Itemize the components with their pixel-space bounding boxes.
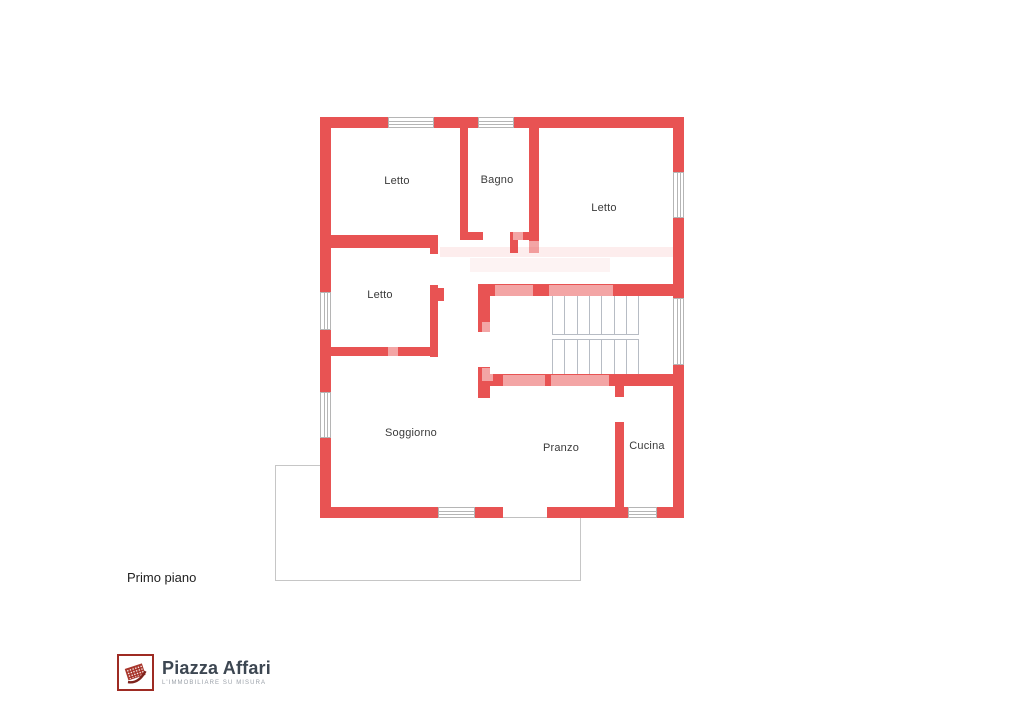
wall-right-c	[673, 365, 684, 518]
window-bottom-2	[628, 507, 657, 518]
window-glazing-line	[324, 293, 325, 329]
watermark-patch	[495, 285, 533, 296]
window-glazing-line	[389, 121, 433, 122]
wall-cucina-left-stub	[615, 386, 624, 397]
stair-tread-line	[626, 339, 627, 374]
stair-tread-line	[626, 296, 627, 334]
room-label-soggiorno: Soggiorno	[385, 427, 437, 439]
window-glazing-line	[324, 393, 325, 437]
watermark-patch	[513, 232, 523, 240]
window-glazing-line	[479, 121, 513, 122]
stair-tread-line	[638, 339, 639, 374]
window-glazing-line	[629, 511, 656, 512]
stair-tread-line	[552, 296, 553, 334]
wall-bottom-b	[475, 507, 503, 518]
stair-landing-line	[552, 339, 639, 340]
window-glazing-line	[479, 124, 513, 125]
agency-name: Piazza Affari	[162, 659, 271, 677]
window-right-1	[673, 172, 684, 218]
stair-tread-line	[577, 339, 578, 374]
terrace-outline-bottom	[275, 580, 581, 581]
window-glazing-line	[680, 299, 681, 364]
building-icon	[122, 659, 149, 686]
wall-bottom-a	[320, 507, 438, 518]
terrace-outline-right	[580, 518, 581, 580]
window-glazing-line	[439, 511, 474, 512]
window-glazing-line	[389, 124, 433, 125]
watermark-patch	[503, 375, 545, 386]
floor-plan-drawing	[0, 0, 1024, 725]
wall-left-a	[320, 117, 331, 292]
wall-letto-divider-stub	[430, 248, 438, 254]
wall-left-c	[320, 438, 331, 518]
window-glazing-line	[629, 514, 656, 515]
window-glazing-line	[439, 514, 474, 515]
wall-midletto-bottom	[330, 347, 438, 356]
agency-tagline: L'IMMOBILIARE SU MISURA	[162, 680, 271, 686]
wall-right-a	[673, 117, 684, 172]
window-glazing-line	[677, 299, 678, 364]
wall-top-b	[434, 117, 478, 128]
stair-tread-line	[589, 339, 590, 374]
stair-tread-line	[601, 339, 602, 374]
stair-tread-line	[614, 339, 615, 374]
window-glazing-line	[677, 173, 678, 217]
window-left-1	[320, 292, 331, 330]
stair-tread-line	[614, 296, 615, 334]
stair-tread-line	[638, 296, 639, 334]
wall-cucina-left	[615, 422, 624, 507]
wall-top-c	[514, 117, 684, 128]
wall-left-b	[320, 330, 331, 392]
watermark-band	[440, 247, 673, 257]
agency-logo-icon	[117, 654, 154, 691]
floor-plan-page: Letto Bagno Letto Letto Soggiorno Pranzo…	[0, 0, 1024, 725]
window-glazing-line	[327, 293, 328, 329]
wall-bagno-bottom-left	[460, 232, 483, 240]
window-left-2	[320, 392, 331, 438]
window-right-2	[673, 298, 684, 365]
wall-letto-divider	[330, 235, 438, 248]
window-top-2	[478, 117, 514, 128]
floor-name-label: Primo piano	[127, 570, 196, 585]
window-bottom-1	[438, 507, 475, 518]
wall-bagno-right	[529, 128, 539, 253]
window-glazing-line	[680, 173, 681, 217]
stair-tread-line	[552, 339, 553, 374]
watermark-patch	[482, 322, 493, 332]
window-top-1	[388, 117, 434, 128]
room-label-letto-3: Letto	[367, 289, 392, 301]
room-label-letto-1: Letto	[384, 175, 409, 187]
agency-logo: Piazza Affari L'IMMOBILIARE SU MISURA	[117, 654, 271, 691]
terrace-outline-top	[275, 465, 320, 466]
terrace-outline-left	[275, 465, 276, 580]
room-label-cucina: Cucina	[629, 440, 664, 452]
watermark-band	[470, 258, 610, 272]
stair-tread-line	[577, 296, 578, 334]
stair-tread-line	[601, 296, 602, 334]
watermark-patch	[482, 368, 493, 381]
watermark-patch	[388, 347, 398, 356]
wall-bottom-d	[657, 507, 684, 518]
wall-midletto-door-bump	[438, 288, 444, 301]
terrace-door-opening	[503, 507, 547, 518]
stair-tread-line	[564, 339, 565, 374]
stair-landing-line	[552, 334, 639, 335]
window-glazing-line	[327, 393, 328, 437]
watermark-patch	[551, 375, 609, 386]
wall-bottom-c	[547, 507, 628, 518]
stair-tread-line	[589, 296, 590, 334]
stair-tread-line	[564, 296, 565, 334]
room-label-letto-2: Letto	[591, 202, 616, 214]
watermark-patch	[549, 285, 613, 296]
room-label-bagno: Bagno	[481, 174, 514, 186]
room-label-pranzo: Pranzo	[543, 442, 579, 454]
wall-bagno-left	[460, 128, 468, 232]
